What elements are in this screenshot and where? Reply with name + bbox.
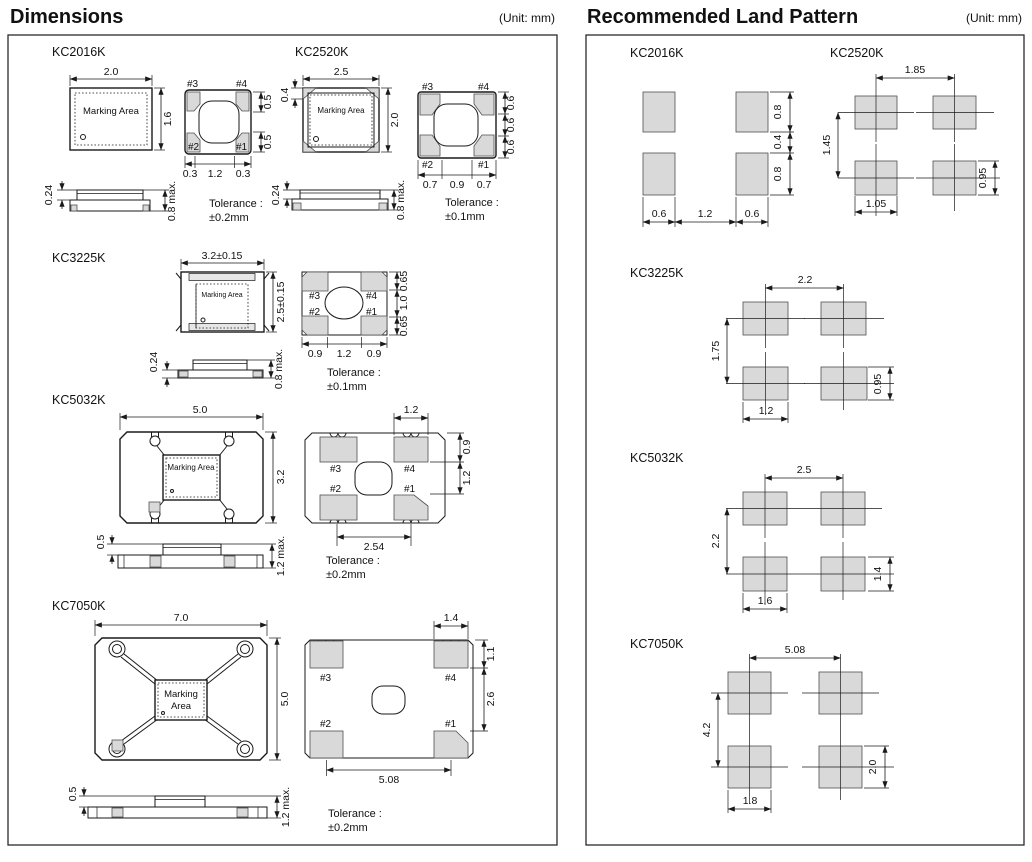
- pad-right-dimensions: 0.5 0.5: [253, 92, 274, 152]
- dim-label: 0.3: [183, 168, 198, 180]
- dim-label: 0.8 max.: [166, 181, 178, 221]
- kc3225k-top-view: Marking Area 3.2±0.15 2.5±0.15: [176, 250, 287, 332]
- center-opening: [372, 686, 405, 714]
- pitch-y-dimension: 1.45: [821, 113, 838, 179]
- pad-right-dimensions: 0.65 1.0 0.65: [389, 271, 410, 337]
- dim-label: 2.5: [797, 464, 812, 476]
- pad-right-dimensions: 1.1 2.6: [470, 640, 497, 731]
- pad4-label: #4: [445, 673, 457, 684]
- pad-width-dimension: 1.2: [743, 402, 788, 423]
- marking-frame: [163, 455, 220, 500]
- dim-label: 1.8: [743, 795, 758, 807]
- kc3225k-land-name: KC3225K: [630, 266, 684, 280]
- castellation: [237, 808, 248, 817]
- pitch-x-dimension: 1.85: [876, 64, 955, 78]
- pad-4: [361, 272, 387, 291]
- dim-label: 0.8: [772, 167, 784, 182]
- pitch-x-dimension: 5.08: [750, 644, 841, 658]
- lid: [77, 190, 143, 200]
- dim-label: 2.2: [710, 534, 722, 549]
- pad3-label: #3: [320, 673, 332, 684]
- kc2016k-top-view: Marking Area 2.0 1.6: [70, 66, 174, 150]
- land-pattern-title: Recommended Land Pattern: [587, 6, 858, 28]
- width-dimension: 5.0: [120, 404, 263, 430]
- height-dimension: 2.0: [381, 88, 401, 152]
- dim-label: 7.0: [174, 612, 189, 624]
- dim-label: 0.8: [772, 105, 784, 120]
- pad-top-dimension: 1.4: [434, 612, 468, 639]
- dim-label: 5.0: [279, 692, 291, 707]
- land-pad: [736, 92, 768, 132]
- tolerance-value: ±0.1mm: [327, 381, 367, 393]
- dim-label: 1.4: [872, 567, 884, 582]
- dim-label: 0.8 max.: [273, 349, 285, 389]
- dim-label: 0.7: [477, 179, 492, 191]
- pad2-label: #2: [188, 142, 200, 153]
- marking-area-label: Marking Area: [201, 292, 242, 299]
- castellation: [253, 371, 262, 377]
- pad-1: [394, 495, 428, 520]
- castellation: [224, 556, 235, 567]
- pad1-label: #1: [445, 719, 457, 730]
- marking-area-label: Marking Area: [83, 106, 140, 117]
- castellation: [143, 205, 149, 211]
- tolerance-label: Tolerance :: [327, 367, 381, 379]
- pad-1: [434, 731, 468, 758]
- dim-label: 0.6: [505, 118, 517, 133]
- pad-2: [310, 731, 343, 758]
- dim-label: 0.5: [95, 535, 107, 550]
- land-pattern-panel: Recommended Land Pattern (Unit: mm) KC20…: [586, 6, 1024, 845]
- kc2520k-land-name: KC2520K: [830, 46, 884, 60]
- package-outline: [303, 88, 379, 152]
- dim-label: 0.7: [423, 179, 438, 191]
- dim-label: 1.2 max.: [275, 536, 287, 576]
- kc3225k-side-view: 0.24 0.8 max.: [148, 349, 285, 389]
- pad-3: [310, 641, 343, 668]
- pitch-y-dimension: 4.2: [701, 693, 718, 767]
- pad1-label: #1: [236, 142, 248, 153]
- pad-4: [394, 437, 428, 462]
- land-pad: [736, 153, 768, 195]
- right-dimensions: 0.8 0.4 0.8: [770, 92, 794, 195]
- pad-3: [320, 437, 357, 462]
- castellation: [71, 205, 77, 211]
- dim-label: 3.2±0.15: [202, 250, 243, 262]
- center-opening: [325, 287, 363, 319]
- dim-label: 2.0: [389, 113, 401, 128]
- bottom-dimensions: 0.6 1.2 0.6: [643, 197, 768, 227]
- dim-label: 2.5±0.15: [275, 281, 287, 322]
- height-dimension: 2.5±0.15: [266, 272, 287, 332]
- dim-label: 1.2: [337, 348, 352, 360]
- kc7050k-side-view: 0.5 1.2 max.: [67, 787, 292, 828]
- kc7050k-land-pattern: KC7050K 5.08 4.2 1.8 2.0: [630, 637, 894, 813]
- kc2520k-pad-view: #3 #4 #2 #1 0.6 0.6 0.6 0.7 0.9 0.7: [418, 82, 517, 191]
- dim-label: 0.5: [67, 787, 79, 802]
- total-height-dimension: 0.8 max.: [247, 349, 285, 389]
- pad-4: [434, 641, 468, 668]
- pitch-y-dimension: 2.2: [710, 509, 727, 575]
- dim-label: 0.3: [236, 168, 251, 180]
- dim-label: 1.2: [698, 208, 713, 220]
- dim-label: 2.6: [485, 692, 497, 707]
- dim-label: 1.2: [759, 405, 774, 417]
- pad-width-dimension: 1.6: [743, 593, 787, 613]
- pad3-label: #3: [330, 464, 342, 475]
- dim-label: 1.05: [866, 198, 887, 210]
- dim-label: 0.6: [505, 140, 517, 155]
- kc7050k-name: KC7050K: [52, 599, 106, 613]
- height-dimension: 5.0: [269, 638, 291, 760]
- dim-label: 0.95: [977, 168, 989, 189]
- tolerance-label: Tolerance :: [326, 555, 380, 567]
- base: [178, 370, 263, 378]
- dim-label: 0.9: [461, 440, 473, 455]
- pad-bottom-dimensions: 0.9 1.2 0.9: [302, 337, 387, 360]
- dim-label: 2.5: [334, 66, 349, 78]
- datasheet-figure: Dimensions (Unit: mm) KC2016K Marking Ar…: [0, 0, 1032, 857]
- dim-label: 0.4: [279, 88, 291, 103]
- tolerance-label: Tolerance :: [209, 198, 263, 210]
- tolerance-label: Tolerance :: [328, 808, 382, 820]
- width-dimension: 2.0: [70, 66, 152, 86]
- pad1-label: #1: [478, 160, 490, 171]
- kc2520k-name: KC2520K: [295, 45, 349, 59]
- pad3-label: #3: [187, 79, 199, 90]
- pad2-label: #2: [309, 307, 321, 318]
- lid: [155, 796, 205, 807]
- dim-label: 0.24: [270, 185, 282, 206]
- dim-label: 3.2: [275, 470, 287, 485]
- kc2520k-tolerance: Tolerance : ±0.1mm: [445, 197, 499, 223]
- dim-label: 1.2: [208, 168, 223, 180]
- marking-area-label: Marking Area: [167, 463, 215, 472]
- pad-right-dimensions: 0.9 1.2: [430, 433, 473, 494]
- dim-label: 0.65: [398, 316, 410, 337]
- pad4-label: #4: [478, 82, 490, 93]
- pad2-label: #2: [422, 160, 434, 171]
- base: [118, 555, 263, 568]
- castellation: [150, 556, 161, 567]
- dimensions-panel: Dimensions (Unit: mm) KC2016K Marking Ar…: [8, 6, 557, 845]
- dim-label: 0.5: [262, 95, 274, 110]
- dim-label: 0.9: [450, 179, 465, 191]
- dim-label: 1.45: [821, 135, 833, 156]
- pad2-label: #2: [330, 484, 342, 495]
- dim-label: 2.0: [867, 760, 879, 775]
- land-pad: [643, 92, 675, 132]
- castellation: [293, 203, 301, 210]
- lid: [193, 360, 247, 370]
- kc3225k-land-pattern: KC3225K 2.2 1.75 1.2 0.95: [630, 266, 894, 423]
- dim-label: 0.95: [872, 374, 884, 395]
- marking-area-label: Marking Area: [317, 106, 365, 115]
- base: [70, 200, 150, 211]
- dim-label: 1.6: [162, 112, 174, 127]
- total-height-dimension: 0.8 max.: [380, 180, 407, 220]
- pad-bottom-dimensions: 0.3 1.2 0.3: [183, 156, 251, 180]
- dim-label: 1.0: [398, 296, 410, 311]
- kc5032k-land-name: KC5032K: [630, 451, 684, 465]
- kc7050k-pad-view: #3 #4 #2 #1 1.4 1.1 2.6 5.08: [305, 612, 497, 834]
- dimensions-unit-label: (Unit: mm): [499, 11, 555, 25]
- pad-bottom-dimension: 5.08: [327, 760, 452, 786]
- dim-label: 0.9: [367, 348, 382, 360]
- pitch-y-dimension: 1.75: [710, 319, 727, 384]
- pad-height-dimension: 1.4: [868, 557, 894, 591]
- kc2016k-side-view: 0.24 0.8 max.: [43, 181, 178, 221]
- pad-height-dimension: 2.0: [864, 746, 889, 788]
- pad-1: [361, 316, 387, 335]
- dim-label: 1.85: [905, 64, 926, 76]
- kc2016k-tolerance: Tolerance : ±0.2mm: [209, 198, 263, 224]
- center-opening: [355, 462, 392, 495]
- dim-label: 0.9: [308, 348, 323, 360]
- dim-label: 5.08: [785, 644, 806, 656]
- height-dimension: 1.6: [154, 88, 174, 150]
- kc5032k-dimensions: KC5032K Marking Area 5.0: [52, 393, 473, 581]
- pad3-label: #3: [422, 82, 434, 93]
- height-dimension: 3.2: [265, 432, 287, 523]
- corner-pad: [149, 502, 160, 512]
- dim-label: 0.5: [262, 135, 274, 150]
- castellation: [379, 203, 387, 210]
- kc7050k-top-view: Marking Area 7.0 5.0: [95, 612, 291, 760]
- kc2016k-pad-view: #3 #4 #2 #1 0.5 0.5 0.3 1.2 0.3: [183, 79, 274, 180]
- pad3-label: #3: [309, 291, 321, 302]
- lid-height-dimension: 0.5: [67, 787, 155, 816]
- tolerance-value: ±0.1mm: [445, 211, 485, 223]
- dim-label: 0.6: [745, 208, 760, 220]
- kc2016k-land-name: KC2016K: [630, 46, 684, 60]
- pad4-label: #4: [236, 79, 248, 90]
- datasheet-page: Dimensions (Unit: mm) KC2016K Marking Ar…: [0, 0, 1032, 857]
- kc2016k-dimensions: KC2016K Marking Area 2.0 1.6: [43, 45, 274, 224]
- kc5032k-pad-view: #3 #4 #2 #1 1.2 0.9 1.2 2.54: [305, 404, 473, 581]
- kc2520k-dimensions: KC2520K Marking Area 2.5 2.0: [270, 45, 517, 223]
- marking-area-label-line2: Area: [171, 701, 192, 712]
- width-dimension: 2.5: [303, 66, 379, 86]
- pad-right-dimensions: 0.6 0.6 0.6: [498, 92, 517, 158]
- dim-label: 1.2 max.: [280, 787, 292, 827]
- kc5032k-land-pattern: KC5032K 2.5 2.2 1.6 1.4: [630, 451, 894, 613]
- lid: [300, 190, 380, 199]
- pad-bottom-dimension: 2.54: [337, 524, 411, 553]
- kc7050k-tolerance: Tolerance : ±0.2mm: [328, 808, 382, 834]
- pad-3: [302, 272, 328, 291]
- lid: [163, 544, 221, 555]
- dim-label: 1.4: [444, 612, 459, 624]
- dim-label: 5.08: [379, 774, 400, 786]
- kc3225k-dimensions: KC3225K Marking Area 3.2±0.15 2.5±0.15: [52, 250, 410, 393]
- tolerance-value: ±0.2mm: [328, 822, 368, 834]
- kc5032k-tolerance: Tolerance : ±0.2mm: [326, 555, 380, 581]
- package-outline: [181, 272, 264, 332]
- dim-label: 0.4: [772, 135, 784, 150]
- width-dimension: 3.2±0.15: [181, 250, 264, 270]
- marking-area-label-line1: Marking: [164, 689, 198, 700]
- package-outline: [70, 88, 152, 150]
- pitch-x-dimension: 2.5: [765, 464, 843, 478]
- kc2520k-side-view: 0.24 0.8 max.: [270, 180, 407, 220]
- dimensions-title: Dimensions: [10, 6, 123, 28]
- tolerance-label: Tolerance :: [445, 197, 499, 209]
- pad1-label: #1: [366, 307, 378, 318]
- pitch-x-dimension: 2.2: [766, 274, 844, 288]
- dim-label: 5.0: [193, 404, 208, 416]
- dim-label: 0.24: [148, 352, 160, 373]
- dim-label: 0.24: [43, 185, 55, 206]
- castellation: [179, 371, 188, 377]
- dim-label: 4.2: [701, 723, 713, 738]
- base-height-dimension: 0.24: [148, 352, 178, 387]
- total-height-dimension: 0.8 max.: [143, 181, 178, 221]
- kc3225k-tolerance: Tolerance : ±0.1mm: [327, 367, 381, 393]
- kc2016k-name: KC2016K: [52, 45, 106, 59]
- base: [292, 199, 388, 210]
- land-pad: [643, 153, 675, 195]
- corner-pad: [112, 740, 123, 751]
- dim-label: 2.0: [104, 66, 119, 78]
- dim-label: 1.75: [710, 341, 722, 362]
- bottom-edge-bar: [189, 324, 255, 331]
- dim-label: 0.6: [505, 96, 517, 111]
- dim-label: 2.2: [798, 274, 813, 286]
- pad-height-dimension: 0.95: [868, 367, 894, 400]
- pad-2: [302, 316, 328, 335]
- dim-label: 0.6: [652, 208, 667, 220]
- dim-label: 1.2: [404, 404, 419, 416]
- pad-top-dimension: 1.2: [394, 404, 428, 435]
- kc3225k-pad-view: #3 #4 #2 #1 0.65 1.0 0.65 0.9 1.2 0.9: [302, 271, 410, 393]
- width-dimension: 7.0: [95, 612, 267, 636]
- dim-label: 1.1: [485, 647, 497, 662]
- tolerance-value: ±0.2mm: [326, 569, 366, 581]
- top-edge-bar: [189, 274, 255, 281]
- land-pattern-unit-label: (Unit: mm): [966, 11, 1022, 25]
- kc2520k-land-pattern: KC2520K 1.85 1.45 1.05 0.95: [821, 46, 1000, 216]
- pad1-label: #1: [404, 484, 416, 495]
- pad4-label: #4: [404, 464, 416, 475]
- kc2016k-land-pattern: KC2016K 0.8 0.4 0.8 0.6 1.2 0.6: [630, 46, 794, 227]
- dim-label: 0.8 max.: [395, 180, 407, 220]
- kc5032k-name: KC5032K: [52, 393, 106, 407]
- castellation: [112, 808, 123, 817]
- tolerance-value: ±0.2mm: [209, 212, 249, 224]
- pad-2: [320, 495, 357, 520]
- pad2-label: #2: [320, 719, 332, 730]
- kc3225k-name: KC3225K: [52, 251, 106, 265]
- dim-label: 1.2: [461, 471, 473, 486]
- dim-label: 1.6: [758, 595, 773, 607]
- corner-dimension: 0.4: [279, 79, 303, 108]
- pad4-label: #4: [366, 291, 378, 302]
- kc7050k-land-name: KC7050K: [630, 637, 684, 651]
- dim-label: 0.65: [398, 271, 410, 292]
- kc7050k-dimensions: KC7050K Marking Area 7.0: [52, 599, 497, 834]
- kc5032k-top-view: Marking Area 5.0 3.2: [120, 404, 287, 523]
- kc5032k-side-view: 0.5 1.2 max.: [95, 535, 287, 577]
- dim-label: 2.54: [364, 541, 385, 553]
- kc2520k-top-view: Marking Area 2.5 2.0 0.4: [279, 66, 401, 152]
